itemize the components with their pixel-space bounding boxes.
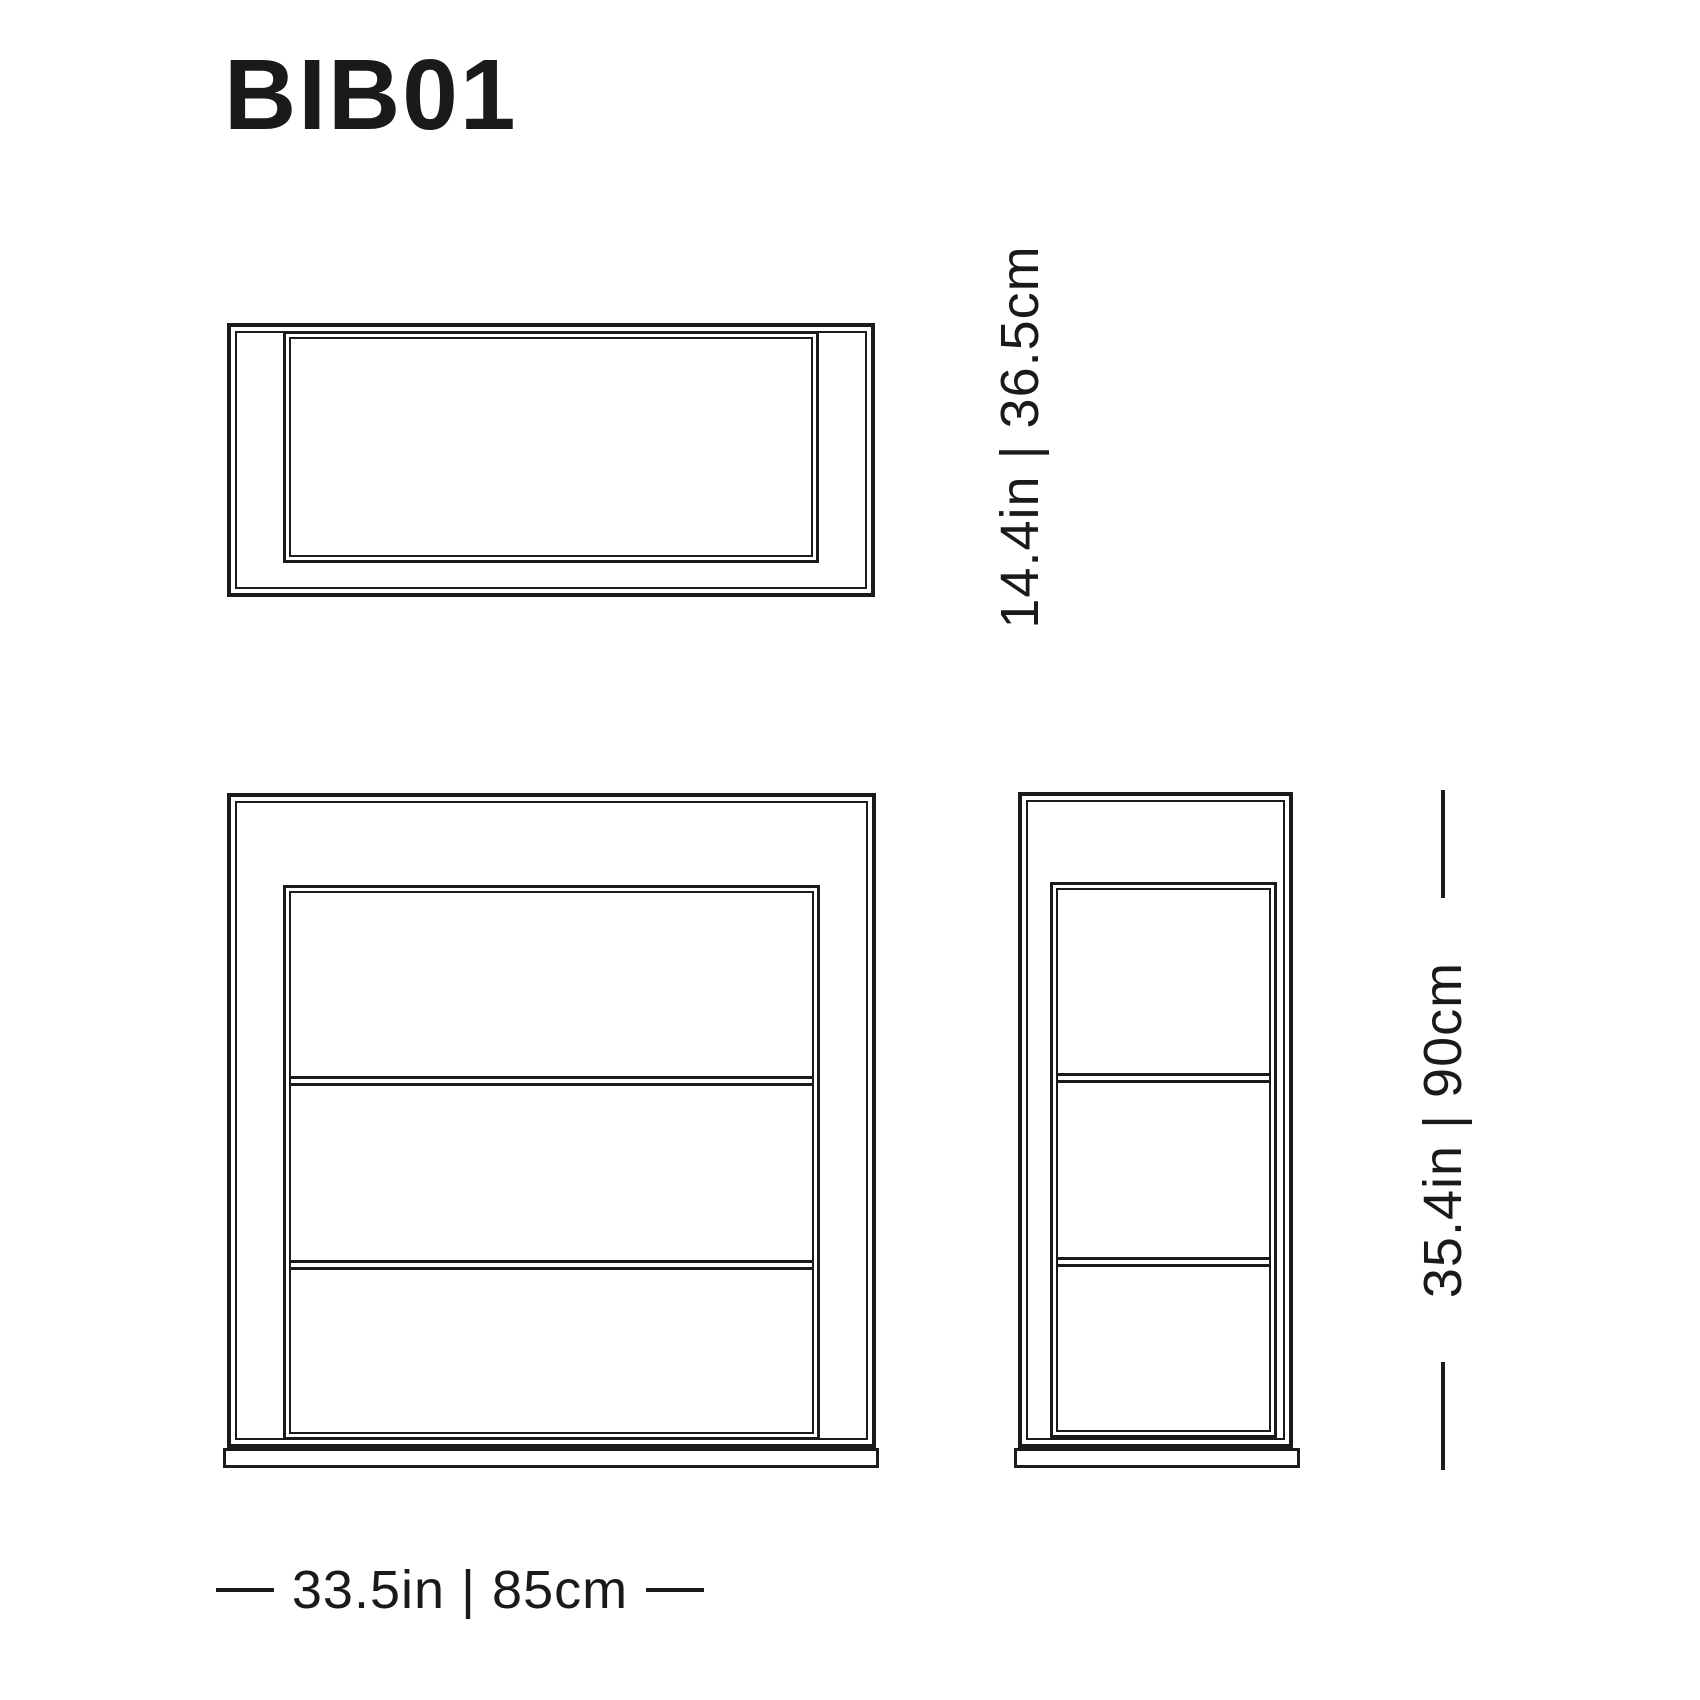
top-view-opening [283, 331, 819, 563]
front-view [227, 793, 876, 1448]
side-shelf-line-1 [1058, 1073, 1269, 1083]
front-view-plinth [223, 1448, 879, 1468]
depth-dimension-label: 14.4in | 36.5cm [989, 245, 1051, 628]
front-shelf-line-1 [291, 1076, 812, 1086]
front-shelf-line-2 [291, 1260, 812, 1270]
side-view-plinth [1014, 1448, 1300, 1468]
front-view-opening [283, 885, 820, 1440]
width-dimension-dash-right [646, 1588, 704, 1592]
height-dimension-label: 35.4in | 90cm [1412, 962, 1474, 1298]
height-dimension-extension-line-top [1441, 790, 1445, 898]
width-dimension-dash-left [216, 1588, 274, 1592]
height-dimension-extension-line-bottom [1441, 1362, 1445, 1470]
page-title: BIB01 [224, 40, 517, 150]
side-view [1018, 792, 1293, 1448]
width-dimension: 33.5in | 85cm [200, 1552, 720, 1628]
side-shelf-line-2 [1058, 1257, 1269, 1267]
width-dimension-label: 33.5in | 85cm [292, 1559, 628, 1621]
technical-drawing-canvas: BIB01 14.4in | 36.5cm 35.4in | 90cm 33.5… [0, 0, 1700, 1700]
side-view-opening [1050, 882, 1277, 1438]
top-view [227, 323, 875, 597]
